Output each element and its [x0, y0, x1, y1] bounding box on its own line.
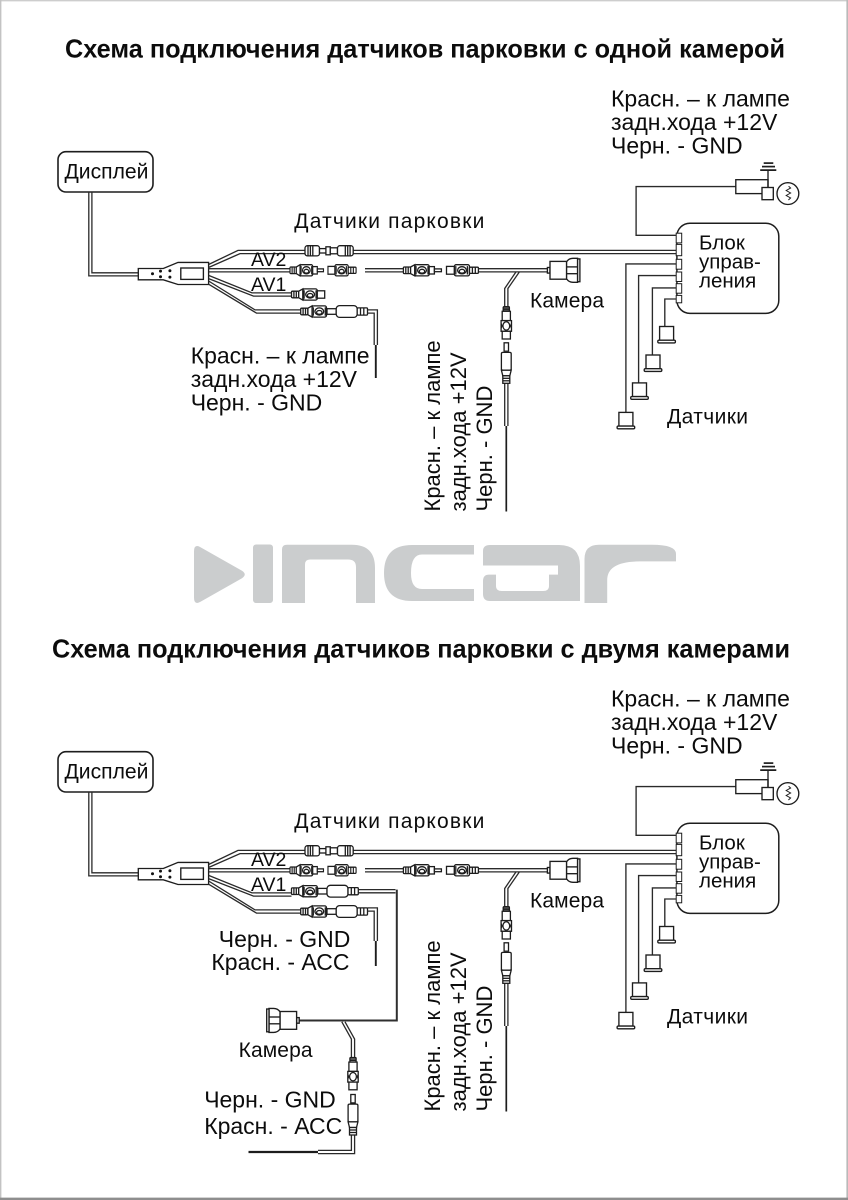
svg-text:задн.хода +12V: задн.хода +12V [446, 352, 471, 511]
svg-text:Схема подключения датчиков пар: Схема подключения датчиков парковки с дв… [52, 634, 790, 664]
svg-text:Красн. – к лампе: Красн. – к лампе [191, 343, 370, 369]
svg-text:Камера: Камера [239, 1039, 313, 1062]
svg-text:Датчики: Датчики [667, 406, 748, 429]
svg-text:Черн. - GND: Черн. - GND [204, 1087, 336, 1113]
svg-text:AV1: AV1 [251, 274, 286, 296]
svg-text:AV2: AV2 [251, 249, 286, 271]
svg-text:Черн. - GND: Черн. - GND [191, 390, 323, 416]
svg-text:Черн. - GND: Черн. - GND [611, 133, 743, 159]
svg-text:Камера: Камера [530, 290, 604, 313]
svg-text:Красн. – к лампе: Красн. – к лампе [420, 340, 445, 511]
svg-text:ления: ления [699, 270, 756, 293]
svg-text:Датчики парковки: Датчики парковки [294, 210, 484, 233]
svg-text:Красн. - АСС: Красн. - АСС [211, 949, 349, 975]
svg-text:Схема подключения датчиков пар: Схема подключения датчиков парковки с од… [65, 34, 785, 64]
svg-text:Красн. – к лампе: Красн. – к лампе [611, 86, 790, 112]
svg-text:Красн. - АСС: Красн. - АСС [204, 1113, 342, 1139]
svg-text:Черн. - GND: Черн. - GND [472, 386, 497, 512]
svg-text:задн.хода +12V: задн.хода +12V [611, 109, 778, 135]
svg-text:задн.хода +12V: задн.хода +12V [191, 366, 358, 392]
svg-text:Дисплей: Дисплей [65, 161, 149, 184]
